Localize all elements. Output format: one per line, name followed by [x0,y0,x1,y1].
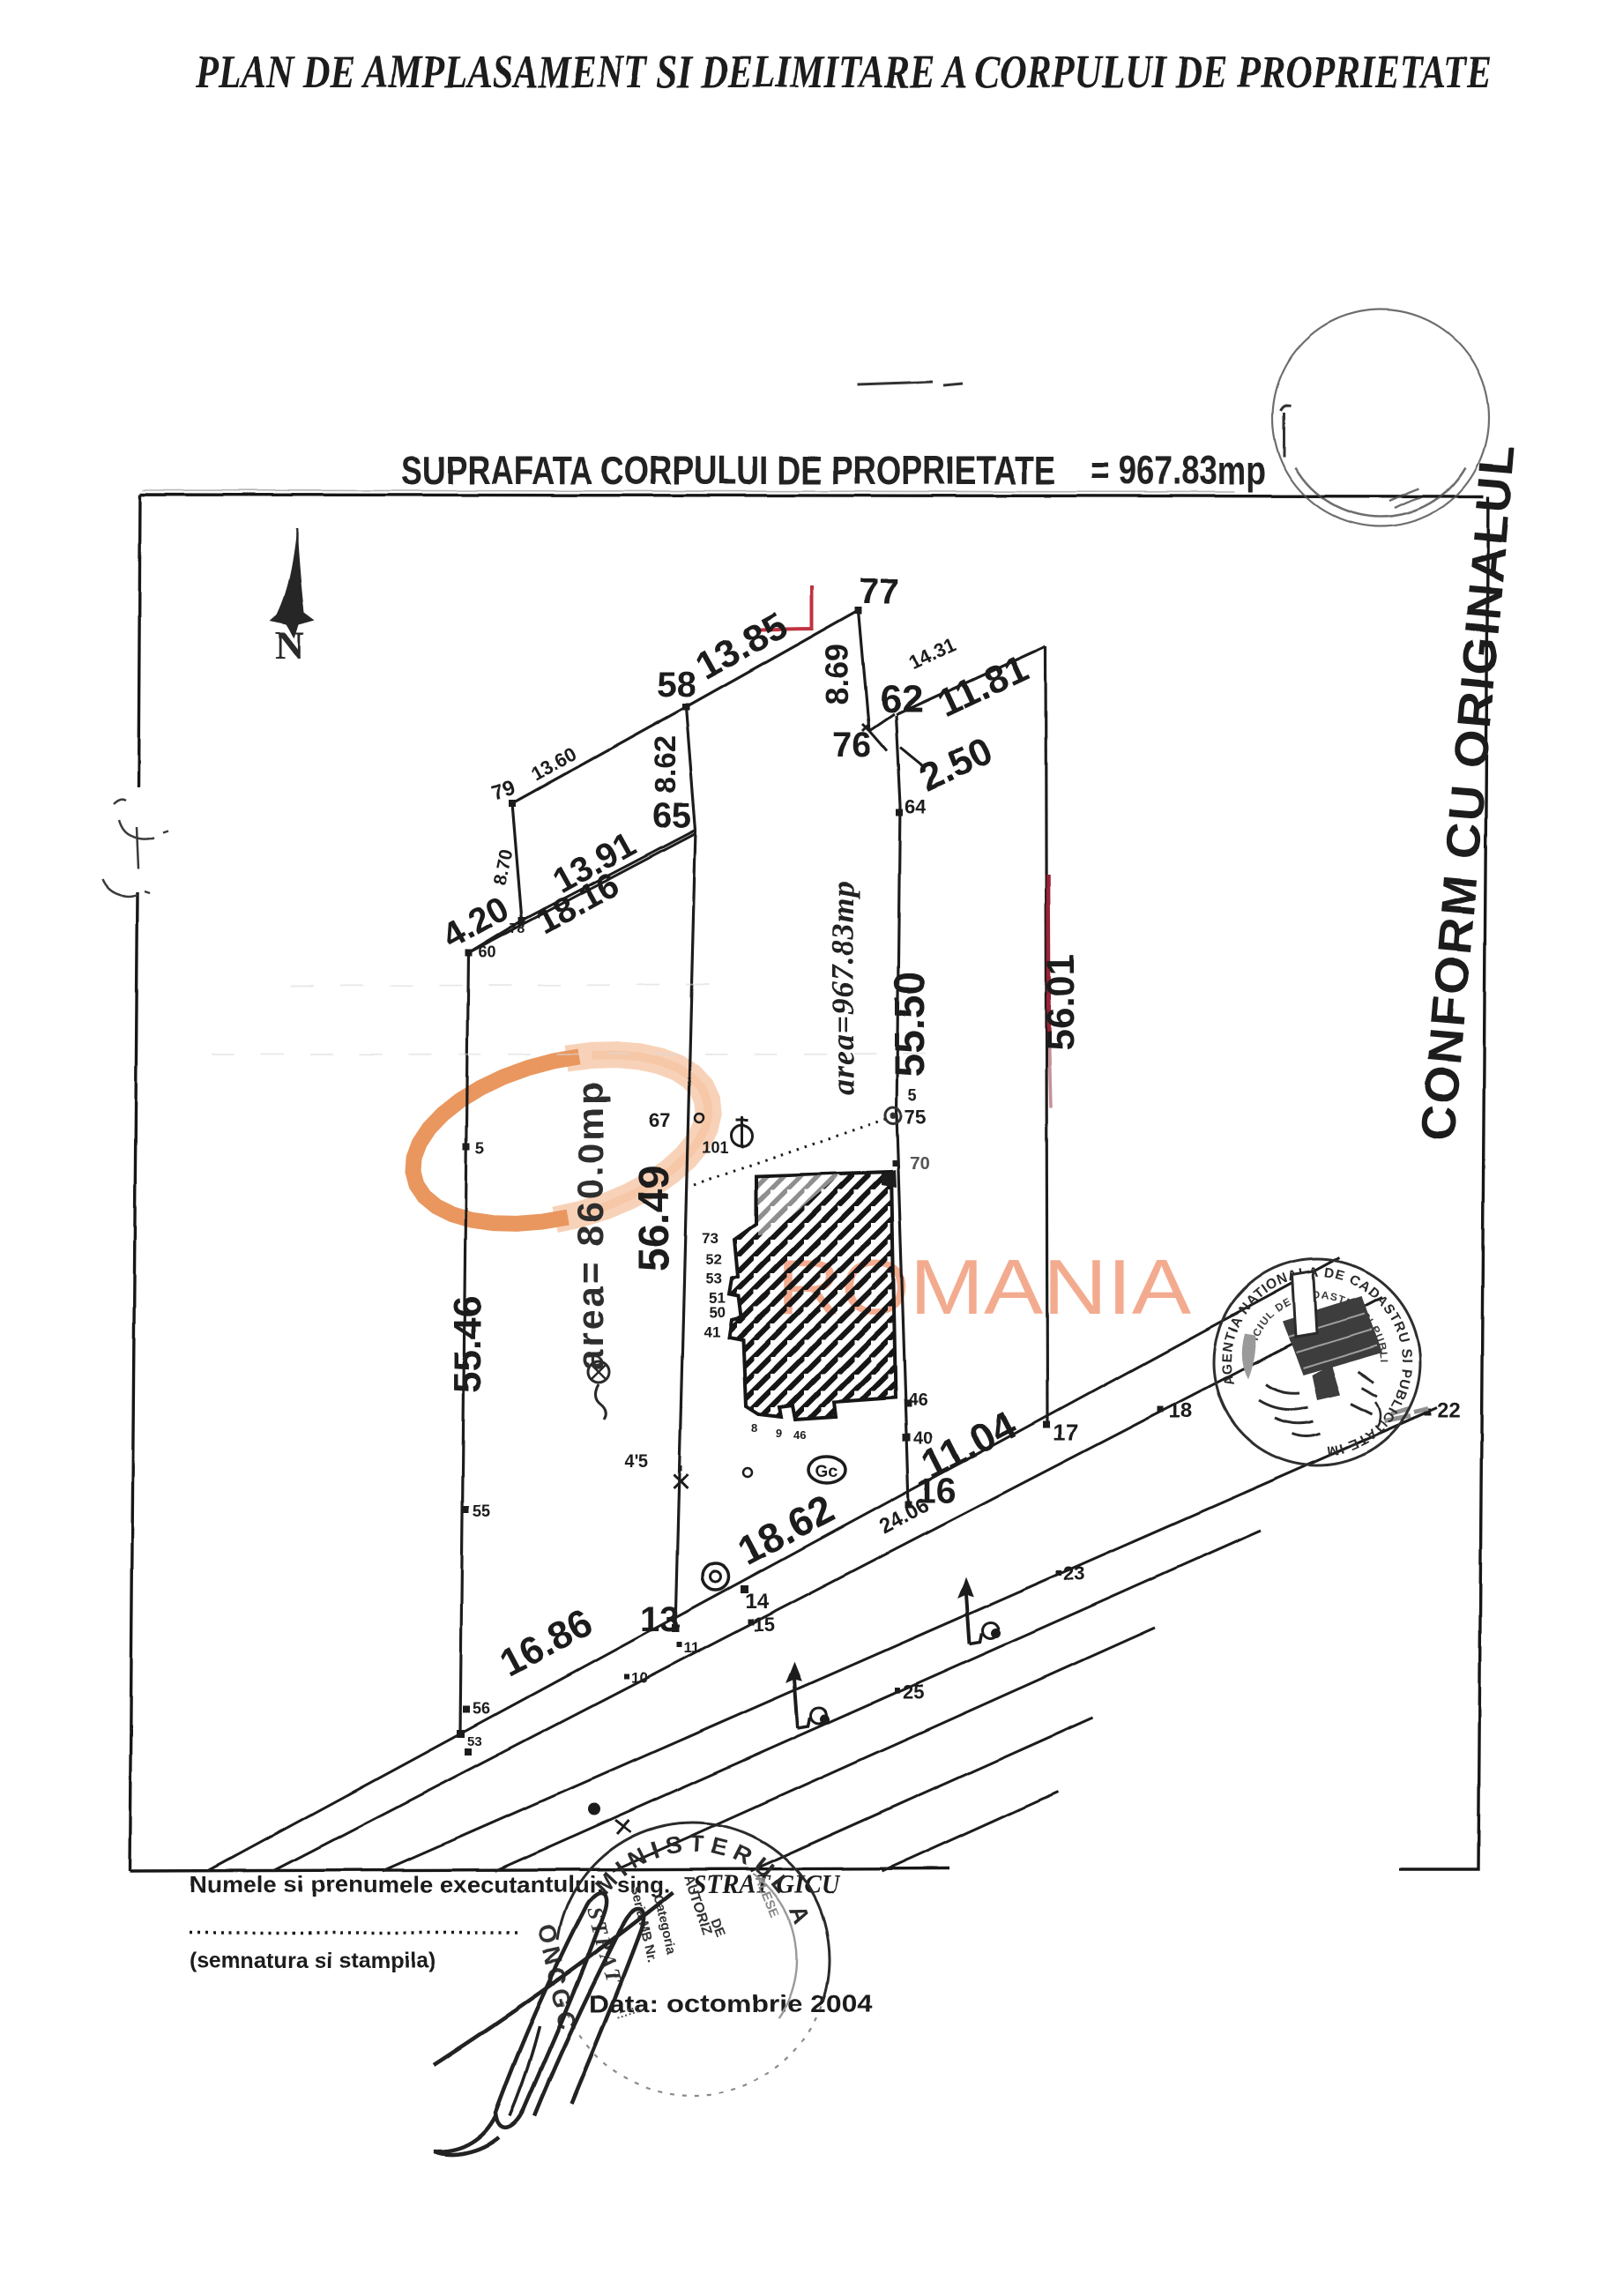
svg-text:4.20: 4.20 [436,890,515,957]
svg-text:5: 5 [908,1086,917,1104]
svg-text:73: 73 [702,1230,718,1247]
svg-text:17: 17 [1053,1420,1078,1446]
svg-text:4'5: 4'5 [624,1452,648,1472]
svg-text:64: 64 [905,795,927,817]
svg-text:52: 52 [705,1251,722,1268]
svg-text:25: 25 [903,1681,924,1703]
svg-text:9: 9 [776,1427,782,1440]
svg-text:8.69: 8.69 [819,644,855,705]
svg-text:60: 60 [478,943,495,961]
svg-text:76: 76 [832,726,872,764]
svg-text:CONFORM CU ORIGINALUL: CONFORM CU ORIGINALUL [1411,441,1525,1144]
svg-text:14: 14 [745,1590,769,1614]
svg-text:(semnatura si stampila): (semnatura si stampila) [190,1949,436,1973]
svg-text:area=967.83mp: area=967.83mp [825,879,860,1095]
svg-text:58: 58 [657,666,696,704]
svg-text:18: 18 [1169,1399,1193,1423]
svg-text:55.50: 55.50 [887,972,934,1077]
svg-text:Gc: Gc [815,1463,838,1481]
svg-text:N: N [275,622,304,667]
svg-text:41: 41 [704,1323,720,1340]
svg-text:11: 11 [684,1639,700,1656]
svg-text:22: 22 [1437,1399,1461,1423]
svg-text:55.46: 55.46 [446,1296,489,1393]
svg-text:101: 101 [702,1139,728,1157]
svg-text:70: 70 [910,1154,929,1174]
svg-text:10: 10 [631,1669,648,1686]
svg-text:65: 65 [652,796,692,835]
svg-text:46: 46 [908,1390,927,1410]
svg-text:67: 67 [649,1109,670,1131]
svg-text:2.50: 2.50 [913,728,1000,800]
svg-text:18.62: 18.62 [730,1486,841,1574]
svg-text:75: 75 [905,1106,926,1128]
svg-text:46: 46 [793,1428,806,1442]
svg-text:area= 860.0mp: area= 860.0mp [570,1079,611,1370]
svg-text:Numele si prenumele executantu: Numele si prenumele executantului: [190,1871,604,1897]
svg-text:SUPRAFATA CORPULUI DE PROPR: SUPRAFATA CORPULUI DE PROPRIETATE = 967.… [401,448,1265,493]
svg-text:56.01: 56.01 [1039,954,1083,1051]
svg-text:16: 16 [917,1472,957,1510]
svg-text:8.62: 8.62 [649,735,682,794]
svg-text:23: 23 [1063,1562,1084,1584]
svg-text:56.49: 56.49 [631,1166,678,1271]
svg-text:13: 13 [640,1600,680,1639]
svg-text:5: 5 [475,1139,484,1157]
svg-text:53: 53 [467,1734,482,1749]
svg-text:8: 8 [751,1421,757,1435]
svg-text:16.86: 16.86 [494,1601,599,1685]
svg-text:55: 55 [473,1502,490,1520]
svg-text:56: 56 [473,1700,490,1718]
svg-text:62: 62 [880,678,923,721]
svg-text:78: 78 [510,921,525,936]
svg-text:53: 53 [705,1271,722,1287]
svg-text:77: 77 [860,572,899,611]
svg-text:14.31: 14.31 [906,634,959,675]
svg-text:PLAN DE AMPLASAMENT SI DEL: PLAN DE AMPLASAMENT SI DELIMITARE A CORP… [195,47,1492,98]
svg-text:50: 50 [709,1304,726,1321]
svg-text:15: 15 [753,1614,774,1636]
svg-text:40: 40 [913,1429,933,1449]
svg-text:8.70: 8.70 [489,847,517,887]
